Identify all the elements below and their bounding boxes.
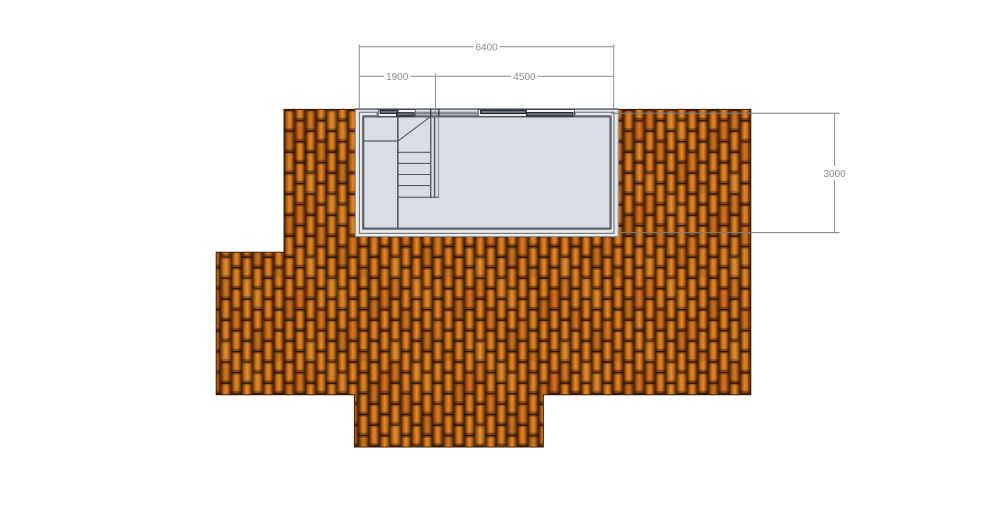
svg-text:6400: 6400 [475, 42, 498, 53]
svg-text:1900: 1900 [386, 72, 409, 83]
svg-text:3000: 3000 [823, 169, 846, 180]
svg-text:4500: 4500 [513, 72, 536, 83]
